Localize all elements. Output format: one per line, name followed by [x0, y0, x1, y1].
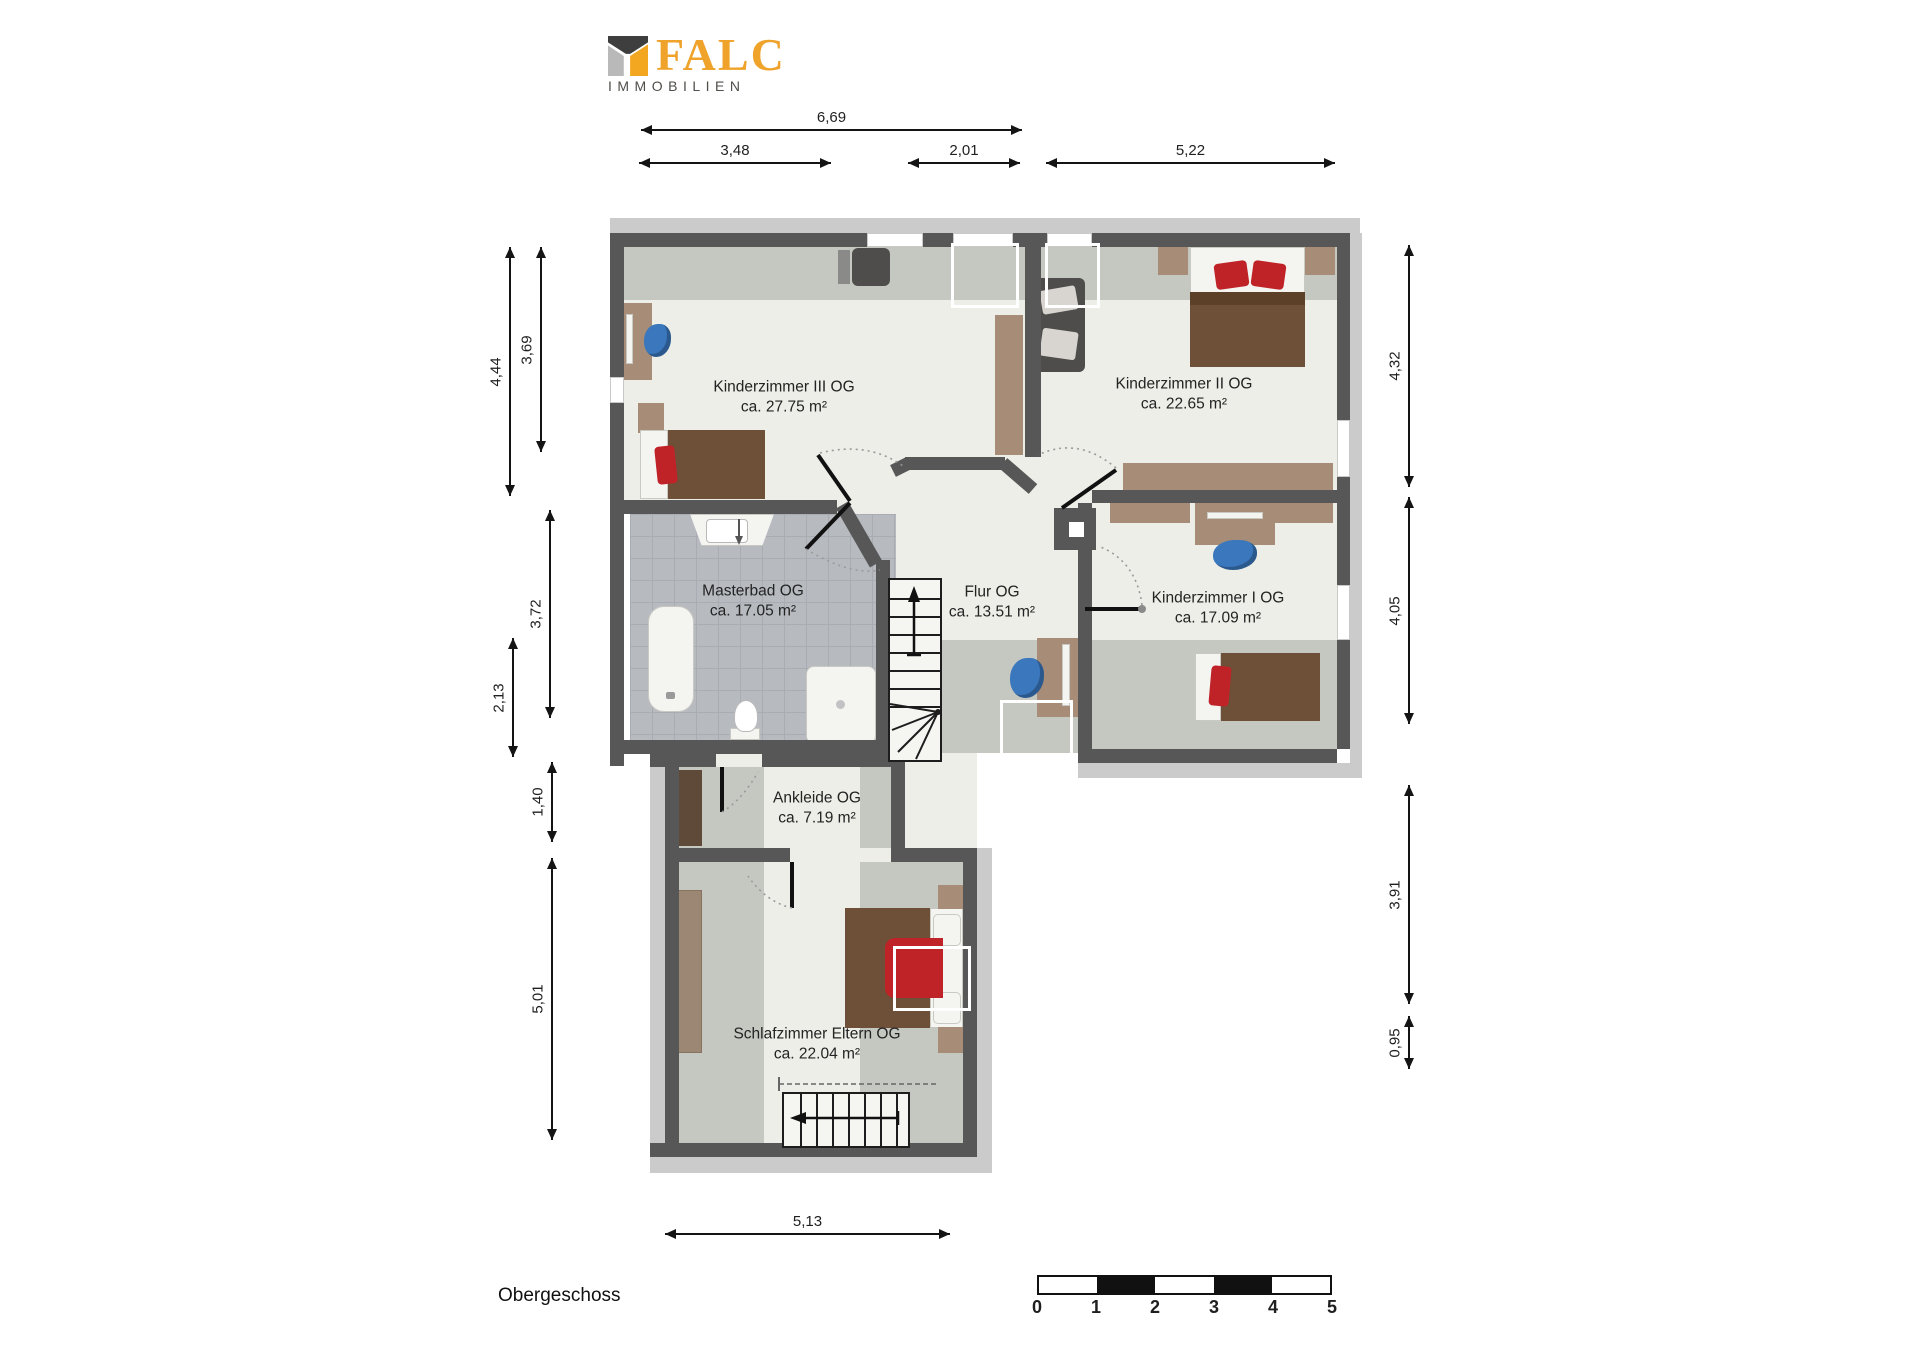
dim-left-369: 3,69 — [540, 247, 542, 452]
scale-number: 1 — [1091, 1297, 1101, 1318]
winder-tread — [890, 704, 938, 712]
stair-arrowhead — [790, 1112, 806, 1124]
sink-arrowhead — [735, 536, 743, 545]
room-label-flur: Flur OGca. 13.51 m² — [949, 583, 1035, 622]
dim-top-total: 6,69 — [641, 129, 1022, 131]
scale-number: 0 — [1032, 1297, 1042, 1318]
door-swing-arc — [820, 449, 903, 466]
door-swing-arc — [1038, 448, 1116, 468]
dim-right-432: 4,32 — [1408, 245, 1410, 487]
wall-diagonal-masterbad — [842, 505, 876, 564]
room-label-masterbad: Masterbad OGca. 17.05 m² — [702, 582, 804, 621]
dim-right-095: 0,95 — [1408, 1016, 1410, 1069]
logo-subtitle: IMMOBILIEN — [608, 78, 784, 94]
scale-number: 4 — [1268, 1297, 1278, 1318]
dim-left-444: 4,44 — [509, 247, 511, 496]
dim-right-391: 3,91 — [1408, 785, 1410, 1004]
dim-left-501: 5,01 — [551, 858, 553, 1140]
scale-number: 3 — [1209, 1297, 1219, 1318]
scale-bar — [1037, 1275, 1332, 1295]
door-swing-arc — [722, 772, 758, 812]
stair-arrowhead — [908, 586, 920, 602]
door-leaf — [818, 455, 850, 501]
dim-left-372: 3,72 — [549, 510, 551, 718]
dim-top-2: 2,01 — [908, 162, 1020, 164]
door-swing-arc — [1098, 546, 1142, 605]
plan-overlay — [0, 0, 1920, 1357]
floor-title: Obergeschoss — [498, 1285, 621, 1307]
wall-cap — [1003, 463, 1033, 489]
dim-left-140: 1,40 — [551, 762, 553, 842]
room-label-kinderzimmer-3: Kinderzimmer III OGca. 27.75 m² — [713, 378, 854, 417]
dim-right-405: 4,05 — [1408, 497, 1410, 724]
room-label-kinderzimmer-1: Kinderzimmer I OGca. 17.09 m² — [1152, 589, 1285, 628]
winder-pivot — [935, 709, 941, 715]
door-leaf — [806, 503, 850, 549]
logo-wordmark: FALC — [656, 28, 786, 81]
room-label-schlafzimmer: Schlafzimmer Eltern OGca. 22.04 m² — [733, 1025, 900, 1064]
winder-tread — [898, 712, 938, 752]
dim-left-213: 2,13 — [512, 638, 514, 757]
room-label-kinderzimmer-2: Kinderzimmer II OGca. 22.65 m² — [1116, 375, 1253, 414]
scale-number: 5 — [1327, 1297, 1337, 1318]
floorplan-page: FALC IMMOBILIEN 6,69 3,48 2,01 5,22 4,44… — [0, 0, 1920, 1357]
dim-top-1: 3,48 — [639, 162, 831, 164]
dim-top-3: 5,22 — [1046, 162, 1335, 164]
falc-logo-icon — [608, 36, 648, 76]
dim-bottom-513: 5,13 — [665, 1233, 950, 1235]
door-swing-arc — [748, 876, 792, 908]
scale-number: 2 — [1150, 1297, 1160, 1318]
door-handle — [1138, 605, 1146, 613]
door-leaf — [1062, 470, 1116, 508]
room-label-ankleide: Ankleide OGca. 7.19 m² — [773, 789, 861, 828]
